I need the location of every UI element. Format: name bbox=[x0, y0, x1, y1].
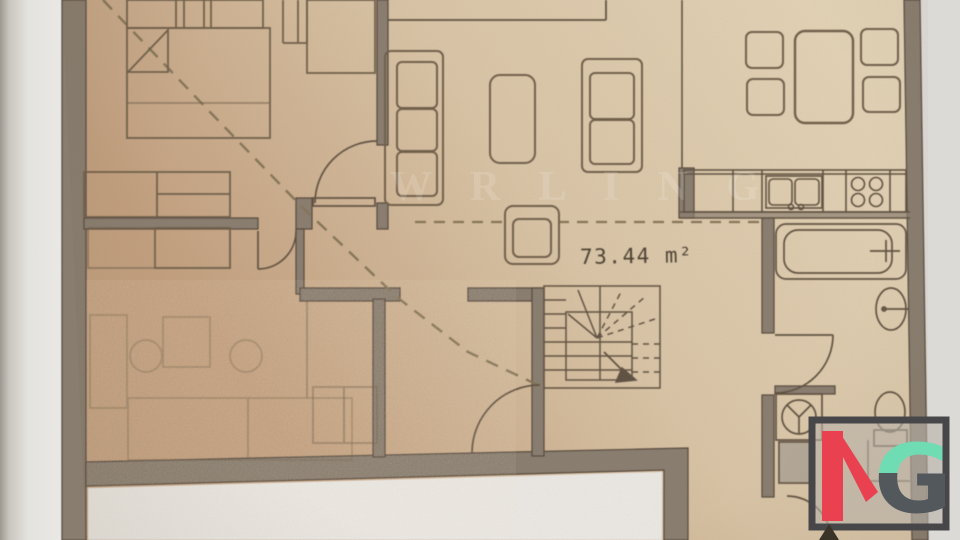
floorplan-photo: 73.44 m² W R L I N G G G bbox=[0, 0, 960, 540]
left-paper-margin bbox=[0, 0, 62, 540]
agency-logo: G G bbox=[812, 420, 952, 535]
floorplan-svg: 73.44 m² W R L I N G G G bbox=[0, 0, 960, 540]
watermark: W R L I N G bbox=[390, 164, 773, 210]
photo-vignette bbox=[62, 0, 928, 540]
logo-letter-g: G G bbox=[874, 425, 952, 535]
